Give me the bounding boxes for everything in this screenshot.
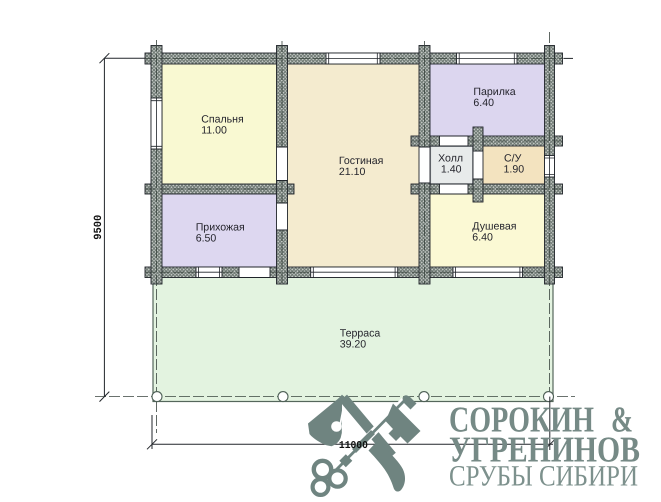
svg-text:11000: 11000: [339, 440, 368, 452]
svg-text:11.00: 11.00: [201, 125, 227, 137]
svg-text:1.40: 1.40: [441, 164, 462, 176]
svg-text:39.20: 39.20: [340, 339, 367, 351]
svg-text:6.50: 6.50: [196, 233, 217, 245]
svg-text:9500: 9500: [93, 215, 105, 240]
svg-text:Гостиная: Гостиная: [339, 155, 383, 167]
svg-text:6.40: 6.40: [472, 231, 493, 243]
svg-text:21.10: 21.10: [339, 166, 366, 178]
svg-text:СРУБЫ СИБИРИ: СРУБЫ СИБИРИ: [449, 461, 638, 493]
svg-text:1.90: 1.90: [504, 164, 525, 176]
svg-text:6.40: 6.40: [473, 97, 494, 109]
